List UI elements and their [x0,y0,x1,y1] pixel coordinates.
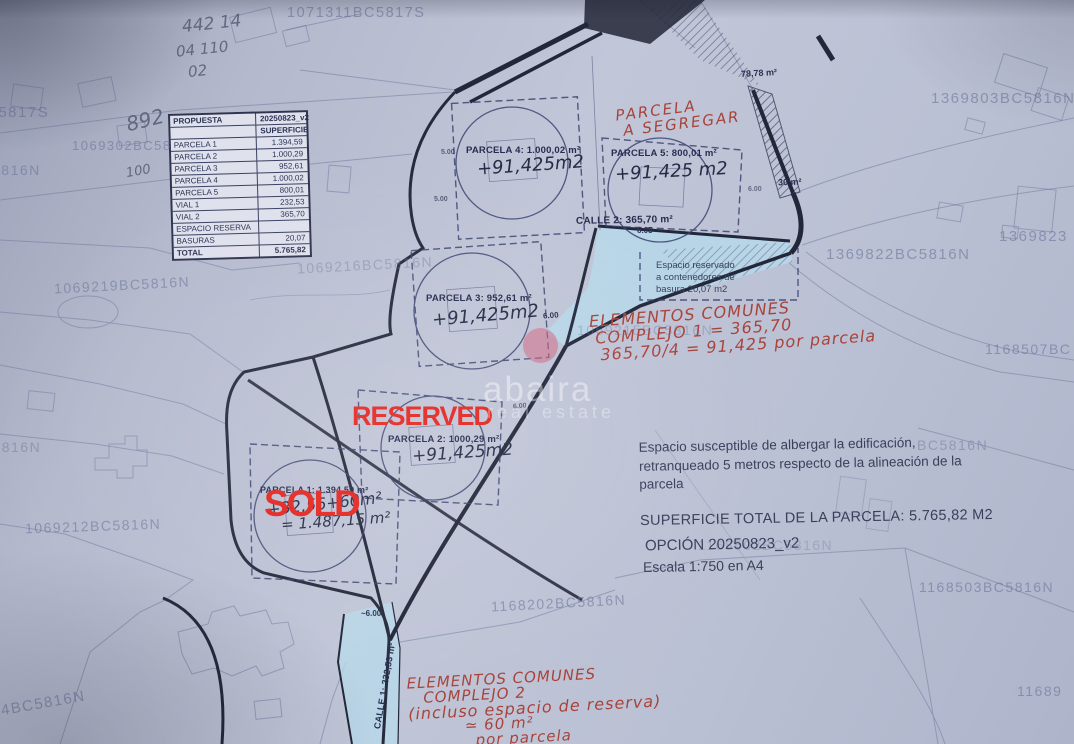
calle2-label: CALLE 2: 365,70 m² [576,214,673,227]
note-complejo2: ELEMENTOS COMUNES COMPLEJO 2 (incluso es… [406,663,663,744]
watermark-tagline: real estate [487,402,615,423]
cadastral-ref: BC5816N [0,439,41,455]
cadastral-ref: 1168507BC [985,341,1071,357]
col-superficie: SUPERFICIE [256,124,312,137]
dim-500-a: 5.00 [441,149,455,156]
cadastral-ref: 1369803BC5816N [931,90,1074,107]
parcel5-label: PARCELA 5: 800,01 m² [611,148,717,159]
cadastral-ref: 5816N [0,162,41,178]
dim-500-b: 5.00 [434,196,448,203]
opcion-version: OPCIÓN 20250823_v2 [645,535,800,555]
cadastral-ref: 1369823 [999,228,1068,245]
escala: Escala 1:750 en A4 [643,557,764,575]
proposal-version: 20250823_v2 [256,112,313,125]
site-plan-photo: PROPUESTA 20250823_v2 SUPERFICIE PARCELA… [0,0,1074,744]
dim-600-c: 6.00 [748,186,762,193]
cadastral-ref: 1369822BC5816N [826,246,970,263]
note-edificacion: Espacio susceptible de albergar la edifi… [639,433,963,494]
pencil-note: 02 [187,61,208,81]
sold-overlay: SOLD [264,483,359,525]
cadastral-ref: 1069302BC58 [72,138,172,153]
note-basura: Espacio reservado a contenedores de basu… [656,260,735,296]
proposal-table: PROPUESTA 20250823_v2 SUPERFICIE PARCELA… [168,110,312,261]
dim-600-a: 6.00 [543,310,559,320]
dim-605: 6.05 [637,226,653,235]
watermark-logo-icon [523,328,558,363]
dim-7878: 78,78 m² [741,67,778,79]
reserved-overlay: RESERVED [352,401,492,432]
cadastral-ref: 1071311BC5817S [287,5,425,21]
cadastral-ref: 1168503BC5816N [919,579,1054,595]
cadastral-ref: 11689 [1017,683,1062,699]
cadastral-ref: C5817S [0,104,49,121]
dim-30m2: 30 m² [778,177,802,188]
dim-600-approx: ~6.00 [361,609,381,618]
